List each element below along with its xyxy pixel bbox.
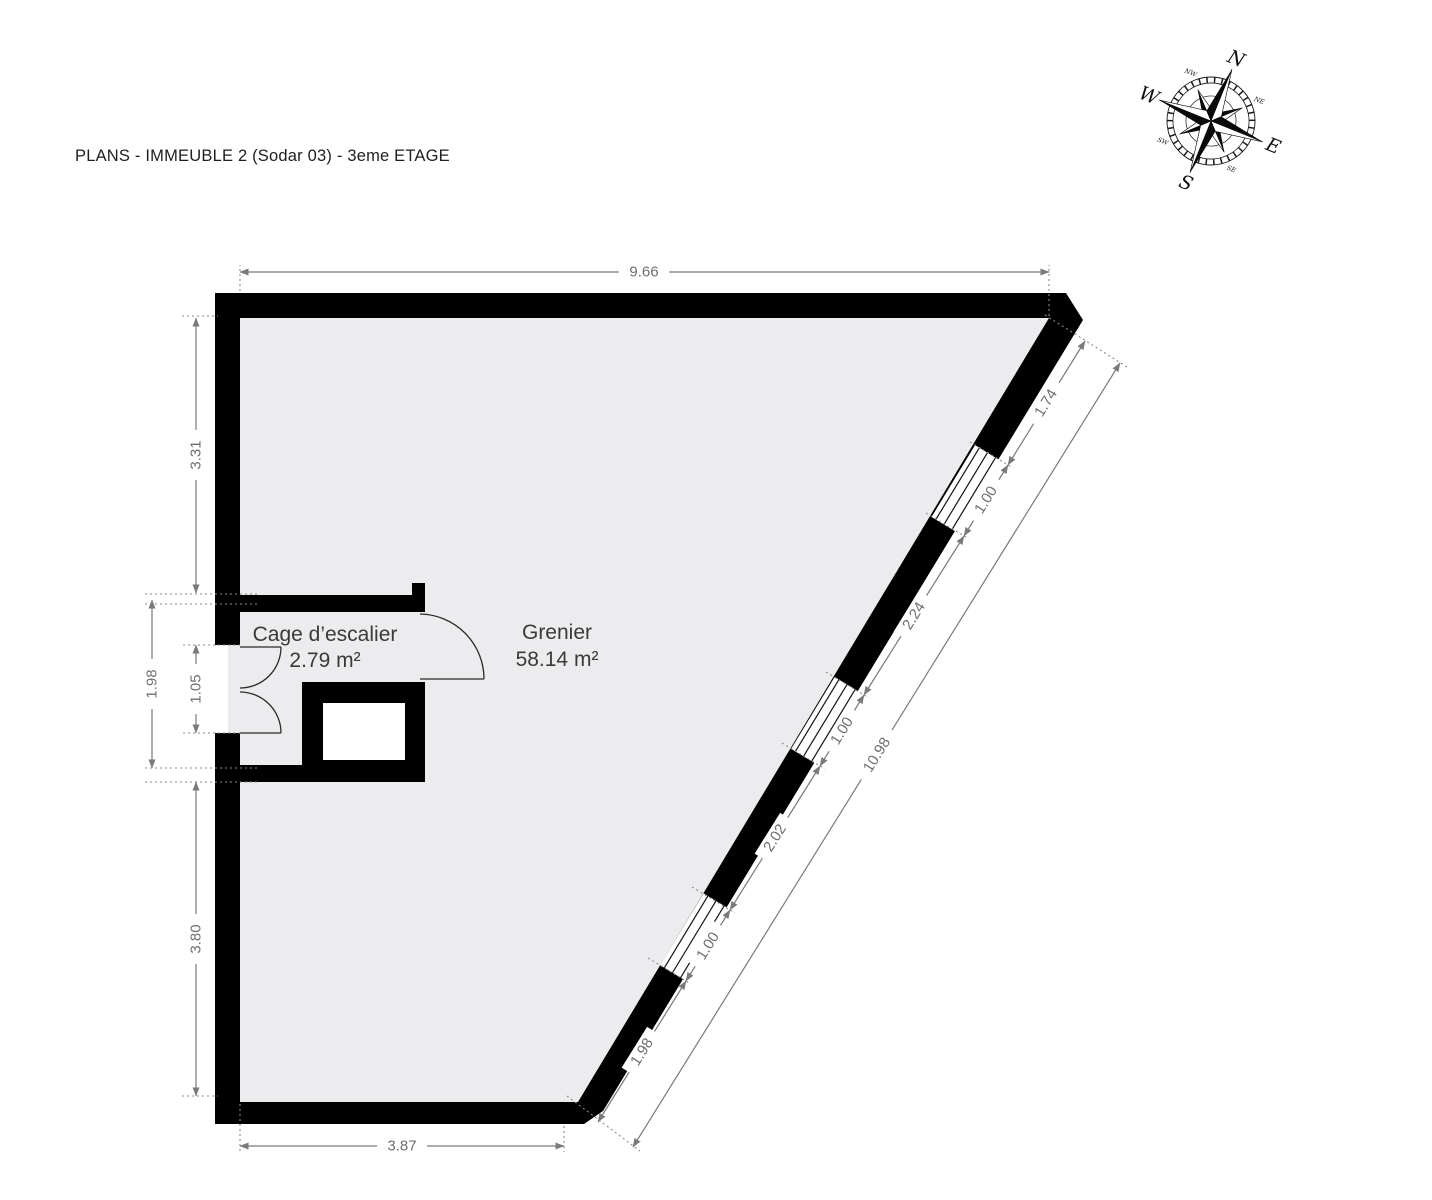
floor-plan-drawing: 9.66 3.31 1.98 1.05 3.80 3.87 1.74 1.00 … <box>0 0 1432 1200</box>
stairwell-area: 2.79 m² <box>289 649 360 672</box>
attic-area: 58.14 m² <box>516 648 599 671</box>
attic-name: Grenier <box>522 621 592 644</box>
compass-se-label: SE <box>1226 164 1238 175</box>
compass-west-label: W <box>1136 82 1164 110</box>
dim-diag-total: 10.98 <box>860 735 894 776</box>
compass-nw-label: NW <box>1182 66 1199 79</box>
dim-left-lower: 3.80 <box>188 924 205 953</box>
dim-top: 9.66 <box>629 264 658 281</box>
compass-ne-label: NE <box>1252 95 1266 107</box>
compass-sw-label: SW <box>1156 136 1171 148</box>
compass-north-label: N <box>1223 45 1249 73</box>
floor-plan-page: PLANS - IMMEUBLE 2 (Sodar 03) - 3eme ETA… <box>0 0 1432 1200</box>
stairwell-name: Cage d’escalier <box>253 623 398 646</box>
shaft-opening <box>323 703 405 760</box>
plan-title: PLANS - IMMEUBLE 2 (Sodar 03) - 3eme ETA… <box>75 147 450 166</box>
compass-rose-icon: N E S W NW NE SE SW <box>1111 20 1309 221</box>
entrance-door-opening <box>215 645 240 733</box>
dim-left-middle: 1.98 <box>144 669 161 698</box>
dim-bottom: 3.87 <box>387 1138 416 1155</box>
compass-east-label: E <box>1262 133 1284 159</box>
compass-south-label: S <box>1176 170 1196 195</box>
dim-left-door: 1.05 <box>188 674 205 703</box>
dim-left-upper: 3.31 <box>188 440 205 469</box>
